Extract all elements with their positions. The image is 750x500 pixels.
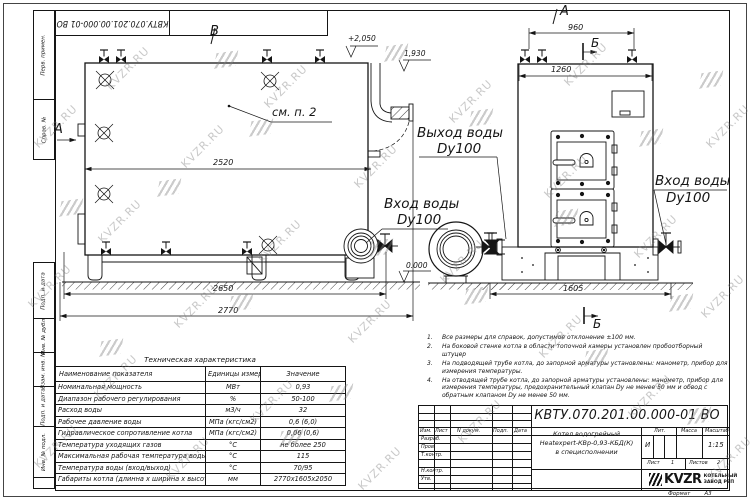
table-row: Рабочее давление водыМПа (кгс/см2)0,6 (6… [56, 416, 346, 428]
dim-2520: 2520 [213, 159, 233, 167]
side-view-dimensions [57, 9, 727, 321]
see-note-2-label: см. п. 2 [272, 107, 316, 119]
row-razrab: Разраб. [421, 437, 441, 442]
row-nkontr: Н.контр. [421, 469, 443, 474]
note-item: 1.Все размеры для справок, допустимое от… [427, 334, 728, 342]
col-podp: Подп. [493, 429, 508, 434]
boiler-door-upper [551, 131, 617, 189]
row-prov: Пров. [421, 445, 436, 450]
dim-1260: 1260 [551, 66, 571, 74]
list-value: 1 [671, 461, 674, 466]
row-utv: Утв. [421, 477, 432, 482]
col-ndoc: N докум. [457, 429, 480, 434]
dim-2770: 2770 [218, 307, 238, 315]
lit-label: Лит. [654, 429, 666, 434]
water-inlet-side-dn: Dy100 [397, 214, 441, 228]
kvzr-logo-icon [649, 473, 662, 486]
note-item: 4.На отводящей трубе котла, до запорной … [427, 377, 728, 401]
row-tkontr: Т.контр. [421, 453, 443, 458]
view-a-front-label: А [560, 5, 569, 18]
water-outlet-dn: Dy100 [437, 143, 481, 157]
view-a-side-label: А [54, 123, 63, 136]
table-row: Расход водым3/ч32 [56, 405, 346, 417]
notes-list: 1.Все размеры для справок, допустимое от… [427, 334, 728, 401]
tech-table-header: Наименование показателя Единицы измерени… [56, 367, 346, 382]
front-view-valves [520, 50, 637, 63]
water-inlet-front-label: Вход воды [655, 175, 730, 189]
elevation-2050: +2,050 [348, 35, 376, 43]
valve-icon [653, 233, 681, 255]
position-marks [95, 71, 279, 254]
front-view [476, 64, 681, 280]
col-data: Дата [514, 429, 527, 434]
elevation-1930: 1,930 [404, 50, 425, 58]
tech-table: Наименование показателя Единицы измерени… [55, 366, 346, 486]
table-row: Температура воды (вход/выход)°С70/95 [56, 462, 346, 474]
boiler-door-lower [551, 189, 617, 247]
massa-label: Масса [681, 429, 697, 434]
dim-1605: 1605 [563, 285, 583, 293]
water-inlet-front-dn: Dy100 [666, 192, 710, 206]
side-view [78, 63, 505, 283]
tech-table-title: Техническая характеристика [55, 355, 345, 364]
water-outlet-label: Выход воды [417, 127, 503, 141]
note-item: 2.На боковой стенке котла в области топо… [427, 343, 728, 359]
product-title: Котел водогрейный Heatexpert-КВр-0,93-КБ… [532, 430, 641, 457]
side-view-valves [99, 50, 325, 255]
drawing-page: КВТУ.070.201.00.000-01 ВО Перв. примен. … [0, 0, 750, 500]
table-row: Температура уходящих газов°Сне более 250 [56, 439, 346, 451]
kvzr-logo: KVZR КОТЕЛЬНЫЙ ЗАВОД РЭП [649, 472, 737, 487]
masshtab-label: Масштаб [705, 429, 729, 434]
section-b-top-label: Б [591, 37, 599, 49]
view-b-label: В [210, 25, 219, 38]
format-note: ФорматА3 [668, 491, 726, 497]
lit-value: И [645, 442, 650, 449]
fan-front [429, 222, 483, 283]
listov-label: Листов [689, 461, 708, 466]
title-block: КВТУ.070.201.00.000-01 ВО Изм. Лист N до… [418, 405, 728, 489]
company-name: КОТЕЛЬНЫЙ ЗАВОД РЭП [704, 474, 738, 485]
col-izm: Изм. [420, 429, 432, 434]
table-row: Габариты котла (длинна х ширина х высота… [56, 474, 346, 486]
dim-2650: 2650 [213, 285, 233, 293]
table-row: Диапазон рабочего регулирования%50-100 [56, 393, 346, 405]
water-inlet-side-label: Вход воды [384, 198, 459, 212]
tech-characteristics: Техническая характеристика Наименование … [55, 355, 345, 486]
ground-hatching [62, 282, 693, 290]
dim-960: 960 [568, 24, 583, 32]
section-b-bottom-label: Б [593, 318, 601, 330]
note-item: 3.На подводящей трубе котла, до запорной… [427, 360, 728, 376]
table-row: Гидравлическое сопротивление котлаМПа (к… [56, 428, 346, 440]
table-row: Максимальная рабочая температура воды°С1… [56, 451, 346, 463]
elevation-0000: 0.000 [406, 262, 427, 270]
valve-icon [378, 234, 398, 252]
col-list: Лист [435, 429, 448, 434]
list-label: Лист [647, 461, 660, 466]
listov-value: 2 [717, 461, 720, 466]
masshtab-value: 1:15 [708, 442, 724, 449]
table-row: Номинальная мощностьМВт0,93 [56, 382, 346, 394]
titleblock-doc-number: КВТУ.070.201.00.000-01 ВО [532, 408, 722, 423]
